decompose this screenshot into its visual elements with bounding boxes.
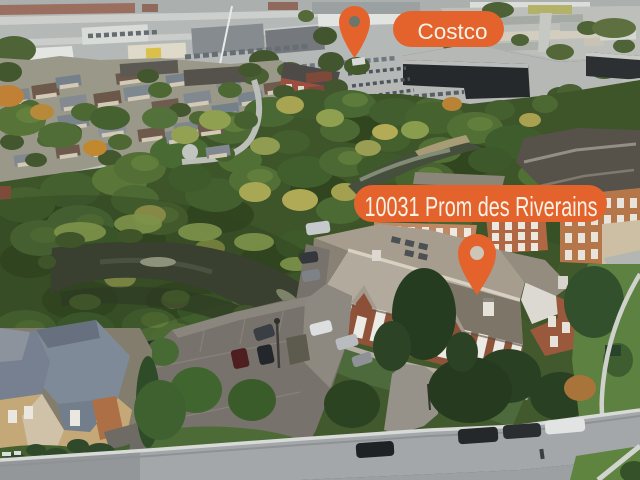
svg-text:Costco: Costco <box>417 19 487 44</box>
svg-text:10031 Prom des Riverains: 10031 Prom des Riverains <box>365 191 598 222</box>
